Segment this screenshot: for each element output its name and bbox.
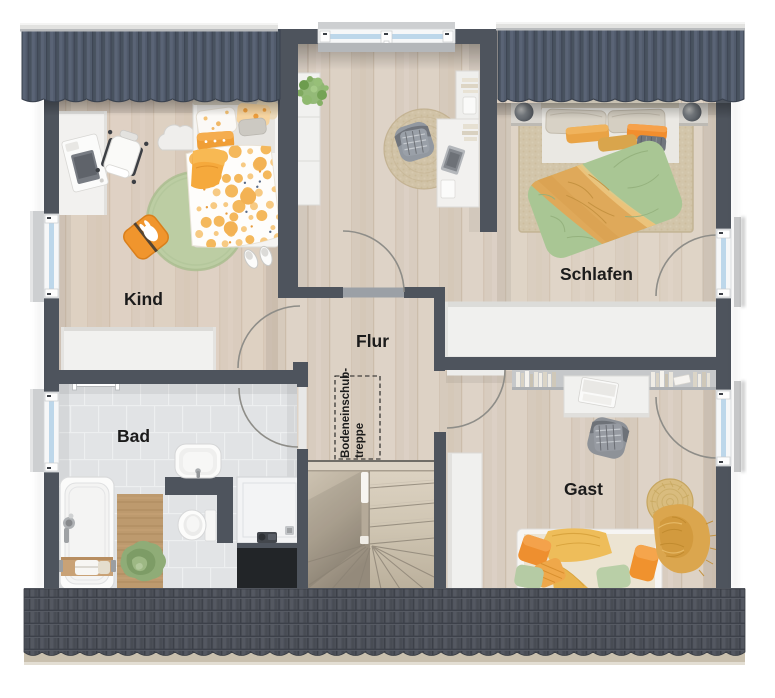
- svg-text:Bodeneinschub-: Bodeneinschub-: [340, 368, 352, 458]
- svg-text:Bad: Bad: [117, 426, 150, 446]
- svg-text:Gast: Gast: [564, 479, 603, 499]
- svg-text:Kind: Kind: [124, 289, 163, 309]
- svg-text:treppe: treppe: [354, 423, 366, 458]
- svg-text:Schlafen: Schlafen: [560, 264, 633, 284]
- svg-text:Flur: Flur: [356, 331, 389, 351]
